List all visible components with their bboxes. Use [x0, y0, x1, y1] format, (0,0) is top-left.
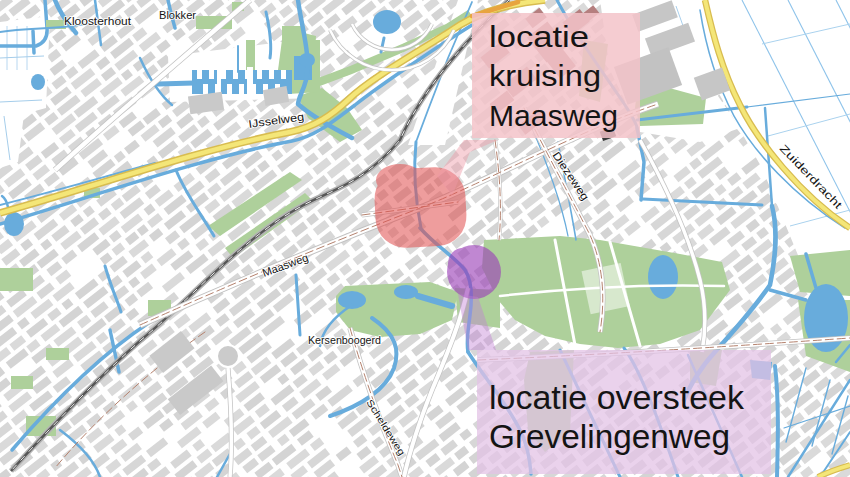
svg-text:locatie oversteek: locatie oversteek [489, 378, 745, 416]
svg-text:locatie: locatie [489, 21, 589, 53]
svg-text:Grevelingenweg: Grevelingenweg [489, 417, 730, 455]
svg-text:Maasweg: Maasweg [489, 100, 618, 132]
svg-text:kruising: kruising [489, 60, 601, 92]
svg-text:Kersenboogerd: Kersenboogerd [308, 334, 381, 346]
svg-text:Blokker: Blokker [159, 9, 197, 21]
svg-text:Kloosterhout: Kloosterhout [64, 15, 131, 27]
